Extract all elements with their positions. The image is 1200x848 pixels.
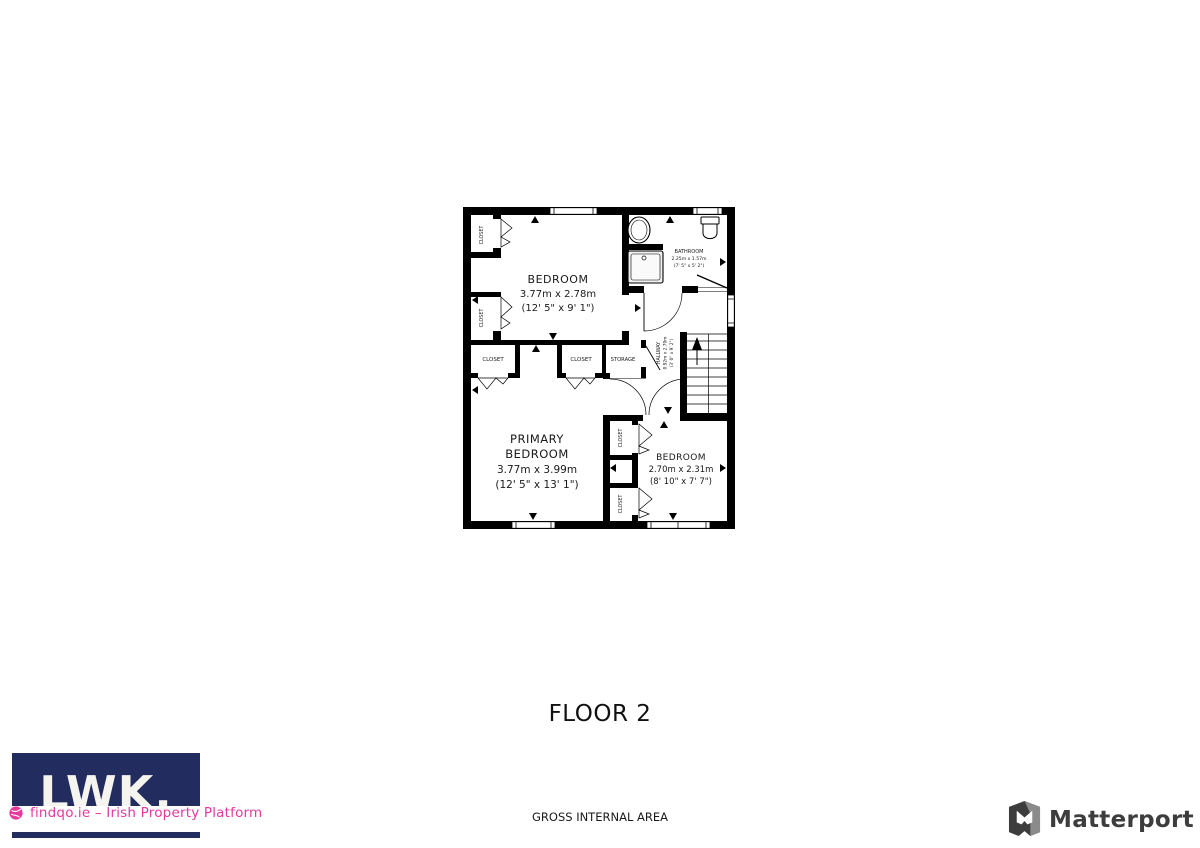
closet-label: CLOSET <box>479 309 485 328</box>
bedroom-top-imperial: (12' 5" x 9' 1") <box>522 303 595 314</box>
closet-label: CLOSET <box>618 495 624 514</box>
bathroom-imperial: (7' 5" x 5' 2") <box>674 263 705 269</box>
agency-logo-underline <box>12 832 200 838</box>
platform-branding: findqo.ie – Irish Property Platform <box>9 805 262 821</box>
primary-bedroom-imperial: (12' 5" x 13' 1") <box>495 479 578 491</box>
hallway-imperial: (3' 0" x 9' 2") <box>669 338 675 367</box>
hallway-label: HALLWAY <box>656 342 662 364</box>
stairs-up-arrow <box>692 337 702 350</box>
closet-label: CLOSET <box>479 226 485 245</box>
agency-logo-text: LWK. <box>39 776 173 806</box>
platform-text: findqo.ie – Irish Property Platform <box>30 805 262 821</box>
globe-icon <box>9 806 23 820</box>
bedroom-top-label: BEDROOM <box>528 273 589 286</box>
page: BEDROOM 3.77m x 2.78m (12' 5" x 9' 1") P… <box>0 0 1200 848</box>
hallway-metric: 0.92m x 2.79m <box>663 337 669 370</box>
closet-label: CLOSET <box>570 357 592 363</box>
matterport-text: Matterport <box>1049 807 1194 833</box>
bedroom-top-metric: 3.77m x 2.78m <box>520 289 596 300</box>
floor-title: FLOOR 2 <box>0 701 1200 727</box>
primary-bedroom-label-2: BEDROOM <box>505 447 569 461</box>
matterport-branding: Matterport <box>1008 801 1194 838</box>
matterport-icon <box>1008 801 1041 838</box>
bedroom-small-label: BEDROOM <box>656 453 706 463</box>
bedroom-small-metric: 2.70m x 2.31m <box>649 465 714 475</box>
primary-bedroom-label-1: PRIMARY <box>510 432 564 446</box>
bathroom-label: BATHROOM <box>675 249 704 255</box>
closet-label: CLOSET <box>482 357 504 363</box>
floorplan: BEDROOM 3.77m x 2.78m (12' 5" x 9' 1") P… <box>463 207 736 530</box>
agency-logo: LWK. <box>12 753 200 806</box>
bedroom-small-imperial: (8' 10" x 7' 7") <box>650 477 712 487</box>
storage-label: STORAGE <box>611 357 636 363</box>
bathroom-metric: 2.25m x 1.57m <box>671 256 707 262</box>
toilet-icon <box>701 217 719 239</box>
closet-label: CLOSET <box>618 429 624 448</box>
primary-bedroom-metric: 3.77m x 3.99m <box>497 464 577 476</box>
stairs <box>687 334 727 413</box>
